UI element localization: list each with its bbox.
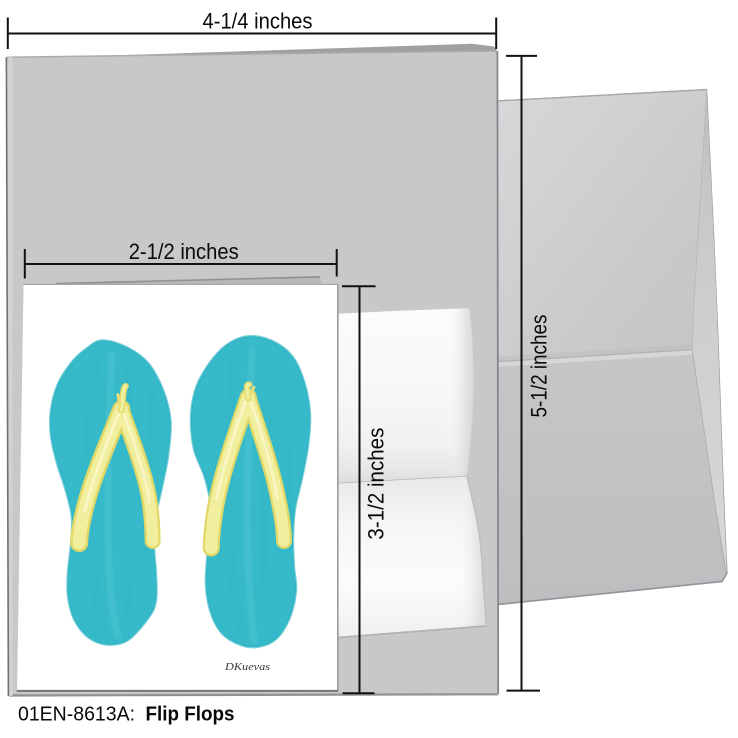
svg-text:01EN-8613A:: 01EN-8613A: [18, 704, 135, 726]
svg-text:2-1/2 inches: 2-1/2 inches [129, 239, 239, 264]
svg-text:Flip Flops: Flip Flops [146, 704, 235, 726]
svg-text:3-1/2 inches: 3-1/2 inches [364, 428, 389, 540]
svg-text:4-1/4 inches: 4-1/4 inches [203, 9, 313, 34]
svg-text:DKuevas: DKuevas [224, 661, 270, 673]
svg-text:5-1/2 inches: 5-1/2 inches [527, 315, 552, 418]
